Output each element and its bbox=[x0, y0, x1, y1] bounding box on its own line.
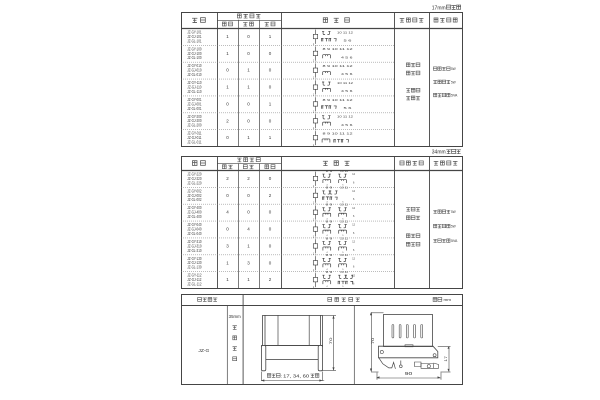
svg-text:10 11 12: 10 11 12 bbox=[337, 115, 354, 119]
svg-text:34mm: 34mm bbox=[432, 150, 446, 156]
svg-text:17: 17 bbox=[444, 356, 448, 362]
svg-text:JZ-GL-310: JZ-GL-310 bbox=[187, 248, 202, 253]
svg-text:10 11 12: 10 11 12 bbox=[337, 30, 354, 34]
svg-text:JZ-GL-110: JZ-GL-110 bbox=[187, 89, 202, 94]
svg-text:10 11 12: 10 11 12 bbox=[337, 81, 354, 85]
svg-text:4 5 6: 4 5 6 bbox=[341, 55, 354, 59]
svg-text:5W: 5W bbox=[451, 67, 456, 71]
svg-text:JZ-GL-001: JZ-GL-001 bbox=[187, 106, 202, 111]
svg-text:5VA: 5VA bbox=[451, 94, 458, 98]
svg-text:70: 70 bbox=[371, 338, 375, 345]
svg-text:JZ-GL-200: JZ-GL-200 bbox=[187, 123, 202, 128]
svg-text:JZ-GL-002: JZ-GL-002 bbox=[187, 197, 202, 202]
svg-text:17mm: 17mm bbox=[432, 5, 446, 11]
svg-text:10 11: 10 11 bbox=[340, 187, 349, 190]
svg-text:JZ-GL-112: JZ-GL-112 bbox=[187, 281, 202, 286]
svg-text:8 9 10 11 12: 8 9 10 11 12 bbox=[323, 131, 354, 135]
svg-text:JZ-GL-400: JZ-GL-400 bbox=[187, 214, 202, 219]
svg-text:10 11: 10 11 bbox=[340, 271, 349, 274]
svg-text:10 11: 10 11 bbox=[340, 170, 349, 173]
svg-text:8 9 10 11 12: 8 9 10 11 12 bbox=[323, 64, 354, 68]
svg-text:5W: 5W bbox=[451, 210, 456, 214]
svg-text:JZ-GL-040: JZ-GL-040 bbox=[187, 231, 202, 236]
svg-text:8 9 10 11 12: 8 9 10 11 12 bbox=[323, 47, 354, 51]
svg-text:JZ-GL-011: JZ-GL-011 bbox=[187, 139, 202, 144]
svg-text:5W: 5W bbox=[451, 225, 456, 229]
svg-text:JZ-G: JZ-G bbox=[198, 348, 209, 353]
svg-text:5VA: 5VA bbox=[451, 239, 458, 243]
svg-text:JZ-GL-100: JZ-GL-100 bbox=[187, 55, 202, 60]
svg-text:10 11: 10 11 bbox=[340, 254, 349, 257]
svg-text:mm: mm bbox=[444, 297, 452, 302]
svg-text:10 11: 10 11 bbox=[340, 204, 349, 207]
svg-text:5W: 5W bbox=[451, 80, 456, 84]
svg-text:70: 70 bbox=[328, 336, 333, 344]
svg-text:35mm: 35mm bbox=[229, 314, 241, 319]
svg-text:8 9 10 11 12: 8 9 10 11 12 bbox=[323, 98, 354, 102]
svg-text:4 5 6: 4 5 6 bbox=[341, 123, 354, 127]
svg-text::: : bbox=[281, 373, 282, 378]
svg-text:5 6: 5 6 bbox=[344, 39, 353, 43]
svg-text:10 11: 10 11 bbox=[340, 220, 349, 223]
svg-text:17, 34, 60: 17, 34, 60 bbox=[283, 373, 310, 378]
svg-text:90: 90 bbox=[405, 371, 414, 376]
svg-text:JZ-GL-220: JZ-GL-220 bbox=[187, 180, 202, 185]
svg-text:JZ-GL-010: JZ-GL-010 bbox=[187, 72, 202, 77]
svg-text:10 11: 10 11 bbox=[340, 237, 349, 240]
svg-text:5 6: 5 6 bbox=[344, 106, 353, 110]
svg-text:4 5 6: 4 5 6 bbox=[341, 72, 354, 76]
svg-text:4 5 6: 4 5 6 bbox=[341, 89, 354, 93]
svg-text:JZ-GL-130: JZ-GL-130 bbox=[187, 265, 202, 270]
svg-text:JZ-GL-101: JZ-GL-101 bbox=[187, 38, 202, 43]
